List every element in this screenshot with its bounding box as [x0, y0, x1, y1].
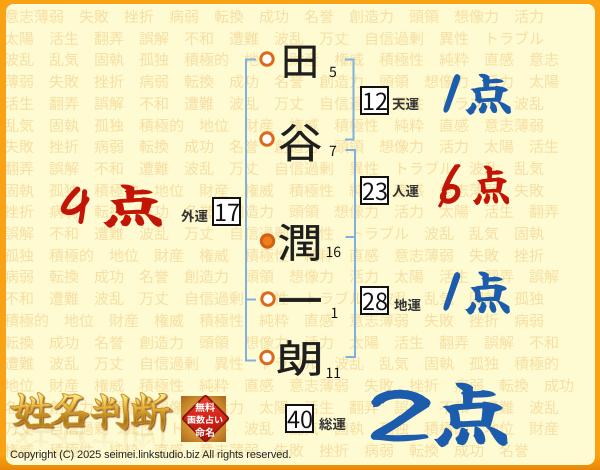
svg-text:2: 2 [358, 352, 444, 463]
svg-text:点: 点 [461, 59, 516, 123]
svg-text:点: 点 [461, 255, 515, 324]
svg-text:点: 点 [470, 151, 514, 214]
svg-text:点: 点 [98, 169, 169, 237]
